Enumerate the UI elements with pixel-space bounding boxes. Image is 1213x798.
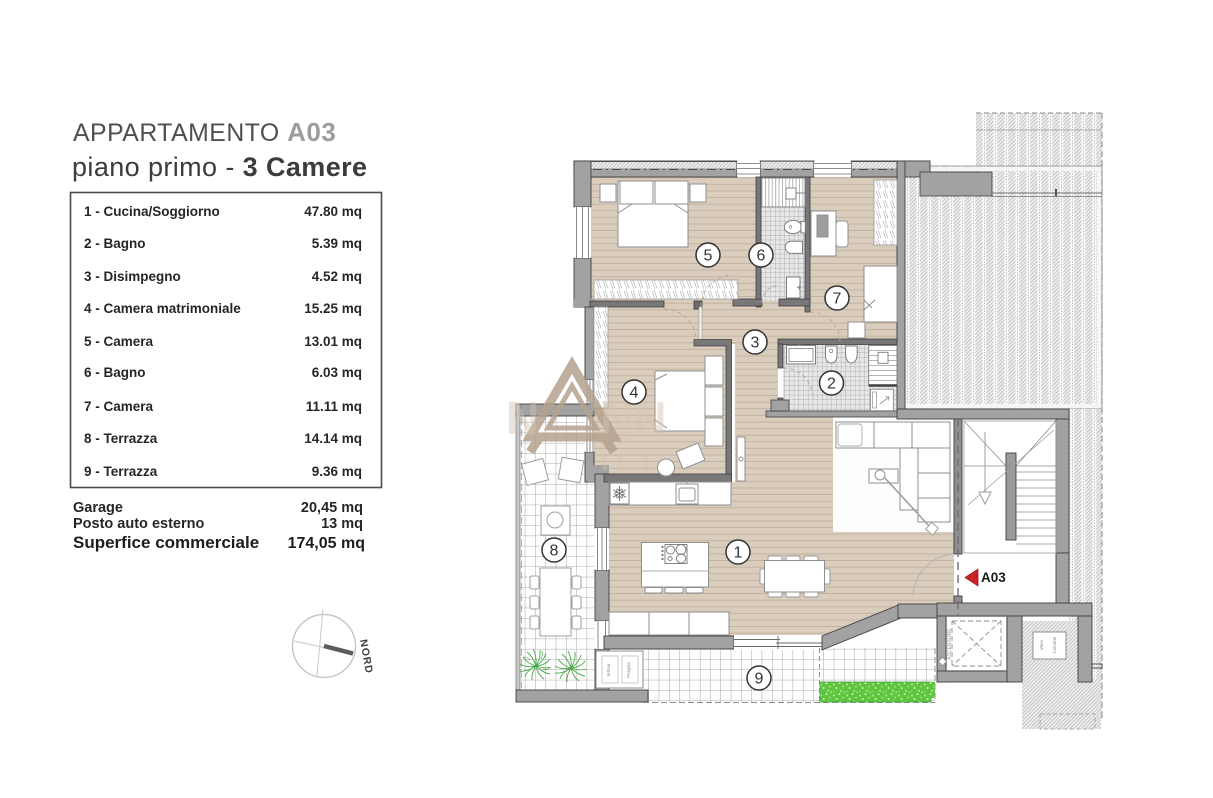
svg-text:6.03 mq: 6.03 mq — [312, 365, 362, 380]
svg-text:5.39 mq: 5.39 mq — [312, 236, 362, 251]
svg-text:9 - Terrazza: 9 - Terrazza — [84, 464, 158, 479]
svg-text:tettoia: tettoia — [606, 663, 611, 676]
svg-text:14.14 mq: 14.14 mq — [304, 431, 362, 446]
svg-text:2 - Bagno: 2 - Bagno — [84, 236, 146, 251]
svg-text:8 - Terrazza: 8 - Terrazza — [84, 431, 158, 446]
svg-text:13.01 mq: 13.01 mq — [304, 334, 362, 349]
svg-text:9: 9 — [755, 671, 764, 688]
svg-text:20,45 mq: 20,45 mq — [301, 500, 363, 516]
svg-text:6: 6 — [757, 248, 766, 265]
svg-text:4 - Camera matrimoniale: 4 - Camera matrimoniale — [84, 301, 241, 316]
svg-text:Garage: Garage — [73, 500, 123, 516]
svg-text:15.25 mq: 15.25 mq — [304, 301, 362, 316]
svg-text:8: 8 — [550, 543, 559, 560]
svg-text:13 mq: 13 mq — [321, 516, 363, 532]
svg-text:1 - Cucina/Soggiorno: 1 - Cucina/Soggiorno — [84, 204, 220, 219]
svg-text:3 - Disimpegno: 3 - Disimpegno — [84, 269, 181, 284]
svg-text:N: N — [506, 392, 539, 444]
svg-text:A03: A03 — [981, 570, 1006, 585]
svg-text:2: 2 — [827, 376, 836, 393]
svg-text:3: 3 — [751, 335, 760, 352]
svg-text:1: 1 — [734, 545, 743, 562]
svg-text:APPARTAMENTO A03: APPARTAMENTO A03 — [73, 117, 336, 147]
svg-text:11.11 mq: 11.11 mq — [306, 399, 362, 414]
svg-text:Superfice commerciale: Superfice commerciale — [73, 533, 259, 552]
svg-text:9.36 mq: 9.36 mq — [312, 464, 362, 479]
svg-text:Colonne: Colonne — [1052, 636, 1057, 653]
svg-text:47.80 mq: 47.80 mq — [304, 204, 362, 219]
svg-text:5 - Camera: 5 - Camera — [84, 334, 154, 349]
svg-text:7 - Camera: 7 - Camera — [84, 399, 154, 414]
svg-text:Pergola: Pergola — [626, 662, 631, 678]
svg-text:Vano: Vano — [1039, 639, 1044, 650]
svg-text:7: 7 — [833, 291, 842, 308]
svg-text:4.52 mq: 4.52 mq — [312, 269, 362, 284]
svg-text:ILL: ILL — [601, 446, 667, 476]
svg-text:5: 5 — [704, 248, 713, 265]
svg-text:piano primo - 3 Camere: piano primo - 3 Camere — [72, 152, 367, 182]
svg-text:Posto auto esterno: Posto auto esterno — [73, 516, 204, 532]
svg-text:174,05 mq: 174,05 mq — [288, 535, 365, 552]
svg-text:6 - Bagno: 6 - Bagno — [84, 365, 146, 380]
svg-text:4: 4 — [630, 385, 639, 402]
svg-text:ASCENSORE: ASCENSORE — [947, 628, 953, 660]
